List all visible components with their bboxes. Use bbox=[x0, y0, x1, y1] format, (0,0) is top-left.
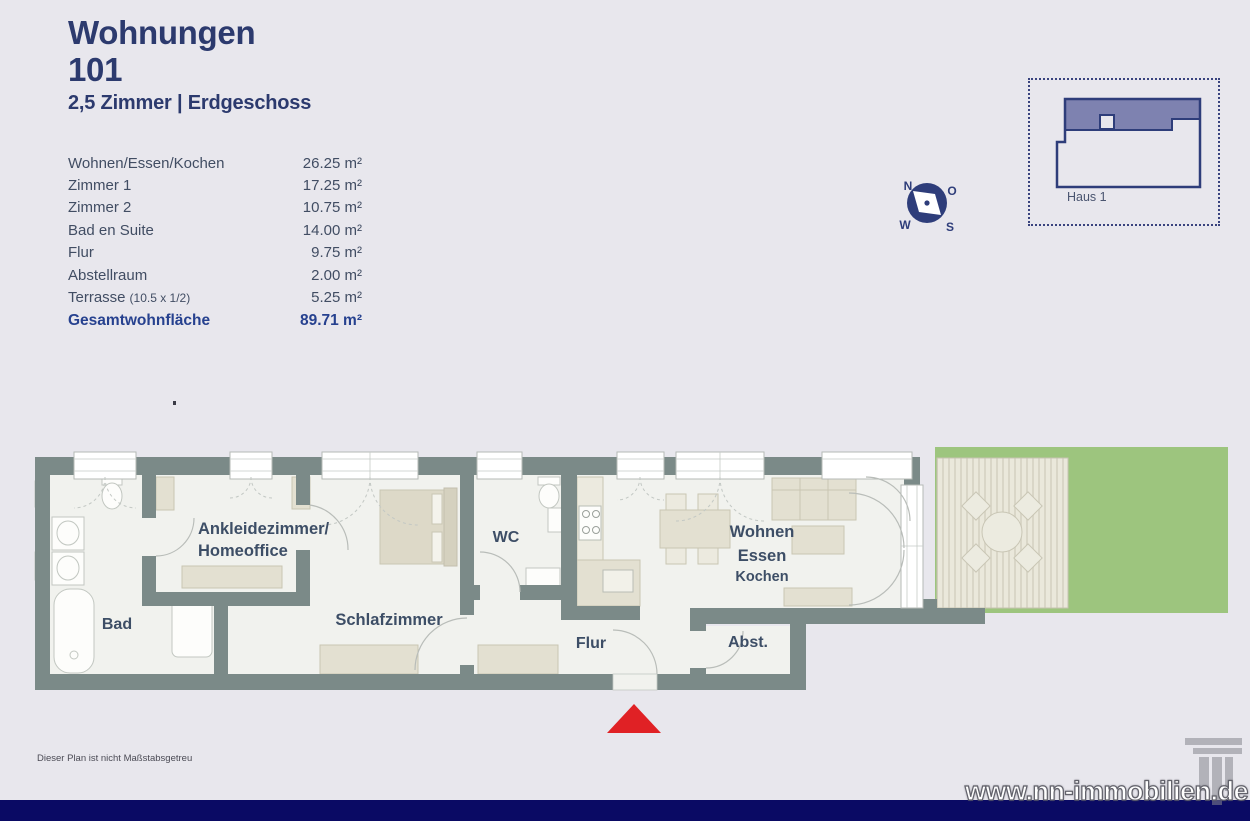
page-subtitle: 2,5 Zimmer | Erdgeschoss bbox=[68, 92, 311, 115]
room-area: 5.25 m² bbox=[311, 289, 362, 306]
table-row: Zimmer 2 10.75 m² bbox=[68, 197, 362, 219]
room-note: (10.5 x 1/2) bbox=[130, 291, 191, 305]
total-row: Gesamtwohnfläche 89.71 m² bbox=[68, 310, 362, 332]
label-essen: Essen bbox=[738, 547, 787, 565]
label-abstellraum: Abst. bbox=[728, 634, 768, 651]
room-name: Flur bbox=[68, 244, 94, 261]
label-flur: Flur bbox=[576, 635, 606, 652]
room-area: 9.75 m² bbox=[311, 244, 362, 261]
room-area: 2.00 m² bbox=[311, 267, 362, 284]
room-area: 17.25 m² bbox=[303, 177, 362, 194]
compass-n: N bbox=[904, 179, 913, 193]
page-title: Wohnungen 101 bbox=[68, 14, 255, 88]
table-row: Terrasse(10.5 x 1/2) 5.25 m² bbox=[68, 286, 362, 308]
disclaimer-text: Dieser Plan ist nicht Maßstabsgetreu bbox=[37, 753, 192, 764]
total-label: Gesamtwohnfläche bbox=[68, 312, 210, 330]
site-plan-label: Haus 1 bbox=[1067, 190, 1107, 204]
room-name: Terrasse bbox=[68, 289, 126, 306]
entrance-door bbox=[613, 674, 657, 690]
room-name: Abstellraum bbox=[68, 267, 147, 284]
room-area: 26.25 m² bbox=[303, 155, 362, 172]
room-name: Zimmer 2 bbox=[68, 199, 131, 216]
table-row: Zimmer 1 17.25 m² bbox=[68, 174, 362, 196]
table-row: Bad en Suite 14.00 m² bbox=[68, 219, 362, 241]
site-plan-box: Haus 1 bbox=[1028, 78, 1220, 226]
title-line1: Wohnungen bbox=[68, 14, 255, 51]
label-ankleide-1: Ankleidezimmer/ bbox=[198, 520, 330, 538]
watermark-url: www.nn-immobilien.de bbox=[965, 776, 1248, 807]
compass-w: W bbox=[899, 218, 911, 232]
room-name: Zimmer 1 bbox=[68, 177, 131, 194]
label-schlafzimmer: Schlafzimmer bbox=[335, 611, 443, 629]
room-area: 10.75 m² bbox=[303, 199, 362, 216]
room-name: Bad en Suite bbox=[68, 222, 154, 239]
label-bad: Bad bbox=[102, 616, 132, 633]
label-kochen: Kochen bbox=[735, 569, 788, 585]
stray-dot bbox=[173, 401, 176, 405]
compass-icon: N O W S bbox=[893, 172, 965, 238]
total-area: 89.71 m² bbox=[300, 312, 362, 330]
site-plan-building bbox=[1030, 80, 1218, 224]
table-row: Abstellraum 2.00 m² bbox=[68, 264, 362, 286]
title-line2: 101 bbox=[68, 51, 255, 88]
room-area: 14.00 m² bbox=[303, 222, 362, 239]
label-wc: WC bbox=[493, 529, 520, 546]
compass-o: O bbox=[947, 184, 956, 198]
label-wohnen: Wohnen bbox=[730, 523, 795, 541]
room-name: Wohnen/Essen/Kochen bbox=[68, 155, 225, 172]
area-table: Wohnen/Essen/Kochen 26.25 m² Zimmer 1 17… bbox=[68, 152, 362, 332]
entrance-arrow bbox=[607, 704, 661, 733]
label-ankleide-2: Homeoffice bbox=[198, 542, 288, 560]
table-row: Flur 9.75 m² bbox=[68, 242, 362, 264]
compass-s: S bbox=[946, 220, 954, 234]
floorplan-page: Bad Ankleidezimmer/ Homeoffice Schlafzim… bbox=[0, 0, 1250, 821]
table-row: Wohnen/Essen/Kochen 26.25 m² bbox=[68, 152, 362, 174]
